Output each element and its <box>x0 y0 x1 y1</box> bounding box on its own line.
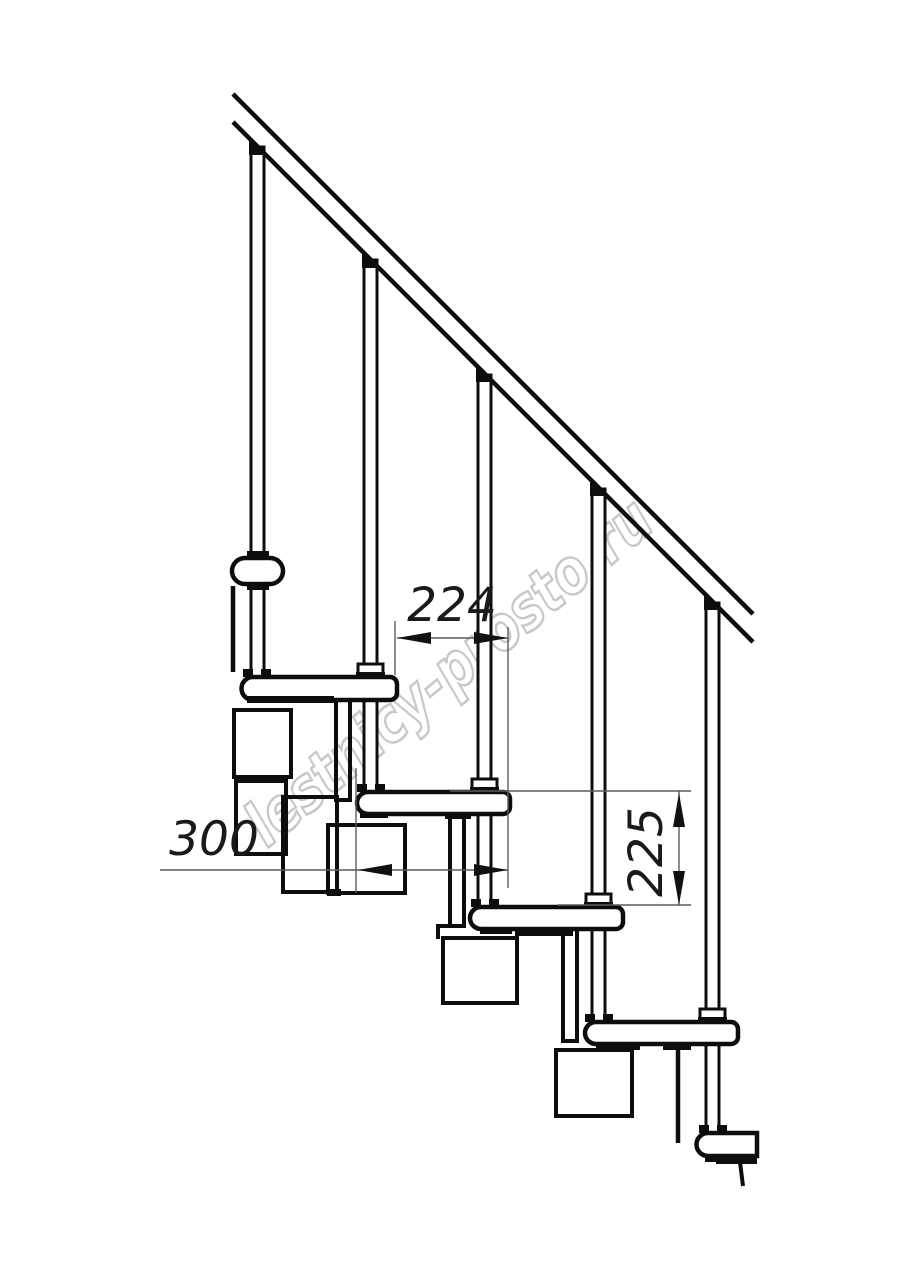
baluster-2-foot <box>375 784 385 792</box>
tread-a-end-view <box>232 558 283 584</box>
pad-under-tread-e <box>596 1043 640 1050</box>
collar-flare-bottom <box>247 584 269 590</box>
baluster-5-collar-pad <box>698 1017 727 1022</box>
pad-module-box-2 <box>327 889 341 896</box>
tread-e <box>585 1022 738 1044</box>
staircase-technical-drawing: lestnicy-prosto.ru <box>0 0 914 1280</box>
baluster-4-foot <box>603 1014 613 1022</box>
arrow-up <box>673 793 685 827</box>
pad-under-tread-e <box>663 1043 691 1050</box>
baluster-2-collar-pad <box>356 672 385 677</box>
baluster-2 <box>364 260 377 792</box>
baluster-5 <box>706 603 719 1135</box>
baluster-2-foot <box>357 784 367 792</box>
baluster-4 <box>592 489 605 1022</box>
pad-under-tread-c <box>360 812 388 818</box>
baluster-1 <box>251 147 264 677</box>
staircase-drawing-page: lestnicy-prosto.ru <box>0 0 914 1280</box>
pad-under-tread-d <box>480 928 512 934</box>
pad-under-tread-d <box>515 929 573 936</box>
pad-under-tread-f <box>705 1155 733 1162</box>
collar-flare-top <box>247 551 269 558</box>
pad-under-tread-f <box>733 1158 757 1164</box>
baluster-5-foot <box>699 1125 709 1133</box>
baluster-1-foot <box>243 669 253 677</box>
baluster-4-foot <box>585 1014 595 1022</box>
pad-under-tread-b <box>247 696 334 703</box>
arrow-down <box>673 871 685 905</box>
tread-d <box>470 907 623 929</box>
module-box-4 <box>556 1050 632 1116</box>
module-box-3 <box>443 938 517 1003</box>
dimension-label-rise: 225 <box>619 807 674 897</box>
baluster-5-foot <box>717 1125 727 1133</box>
handrail <box>233 94 753 642</box>
baluster-3-foot <box>489 899 499 907</box>
dimension-label-depth: 300 <box>169 812 259 867</box>
arrow-left <box>358 864 392 876</box>
module-neck-d <box>563 929 577 1041</box>
arrow-left <box>397 632 431 644</box>
baluster-3-foot <box>471 899 481 907</box>
tread-f-partial <box>697 1133 758 1156</box>
baluster-1-foot <box>261 669 271 677</box>
tread-c <box>357 792 510 814</box>
handrail-lower-edge <box>233 122 753 642</box>
lower-module-cut-edge <box>716 1162 743 1186</box>
dimension-label-run: 224 <box>407 578 497 633</box>
module-box-2 <box>328 825 405 893</box>
handrail-upper-edge <box>233 94 753 614</box>
pad-under-tread-c <box>445 813 471 819</box>
